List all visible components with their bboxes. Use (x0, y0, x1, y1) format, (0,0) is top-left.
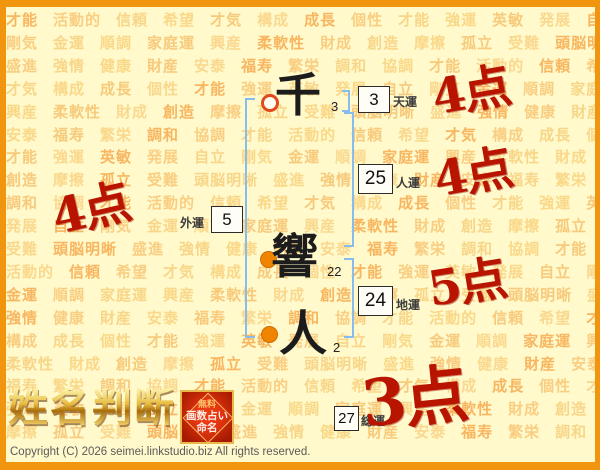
chiun-bracket-tick-top (344, 258, 354, 260)
tenun-label: 天運 (393, 93, 417, 110)
jinun-bracket-tick-top (344, 112, 354, 114)
souun-score: 3点 (359, 363, 470, 438)
jinun-bracket-line (352, 112, 354, 247)
gaiun-bracket-line (245, 98, 247, 338)
jinun-label: 人運 (396, 174, 420, 191)
gaiun-bracket-tick-top (245, 98, 255, 100)
badge-line-1: 無料 (198, 399, 216, 409)
tenun-value: 3 (369, 90, 378, 110)
badge-line-2: 画数占い (186, 410, 228, 423)
chiun-value: 24 (365, 290, 386, 312)
stroke-marker-filled-2 (261, 326, 278, 343)
gaiun-value: 5 (222, 210, 231, 230)
chiun-bracket-tick-bottom (344, 336, 354, 338)
gaiun-bracket-tick-bottom (245, 336, 255, 338)
tenun-value-box: 3 (358, 86, 390, 113)
free-kazu-uranai-badge: 無料 画数占い 命名 (180, 390, 234, 444)
jinun-value: 25 (365, 168, 386, 190)
chiun-score: 5点 (425, 254, 509, 314)
jinun-value-box: 25 (358, 164, 393, 194)
jinun-bracket-tick-bottom (344, 245, 354, 247)
stroke-count-1: 3 (331, 99, 338, 114)
gaiun-label: 外運 (180, 214, 204, 231)
name-char-3: 人 (279, 310, 327, 358)
page-frame: 才能活動的信頼希望才気構成成長個性才能強運英敏発展自立剛気金運順調家庭運興産柔軟… (0, 0, 600, 470)
jinun-score: 4点 (430, 144, 515, 205)
chiun-bracket-line (352, 258, 354, 338)
site-logo[interactable]: 姓名判断 (8, 388, 176, 428)
badge-line-3: 命名 (197, 422, 218, 435)
souun-value: 27 (338, 410, 355, 427)
tenun-bracket-tick-top (342, 90, 350, 92)
stroke-count-2: 22 (327, 264, 341, 279)
stroke-count-3: 2 (333, 340, 340, 355)
chiun-label: 地運 (396, 296, 420, 313)
name-char-2: 響 (271, 234, 318, 281)
tenun-score: 4点 (428, 62, 513, 123)
chiun-value-box: 24 (358, 286, 393, 316)
name-char-1: 千 (275, 72, 321, 118)
copyright-text: Copyright (C) 2026 seimei.linkstudio.biz… (10, 446, 310, 458)
gaiun-value-box: 5 (211, 206, 243, 233)
souun-value-box: 27 (334, 406, 359, 431)
tenun-bracket-line (348, 90, 350, 112)
